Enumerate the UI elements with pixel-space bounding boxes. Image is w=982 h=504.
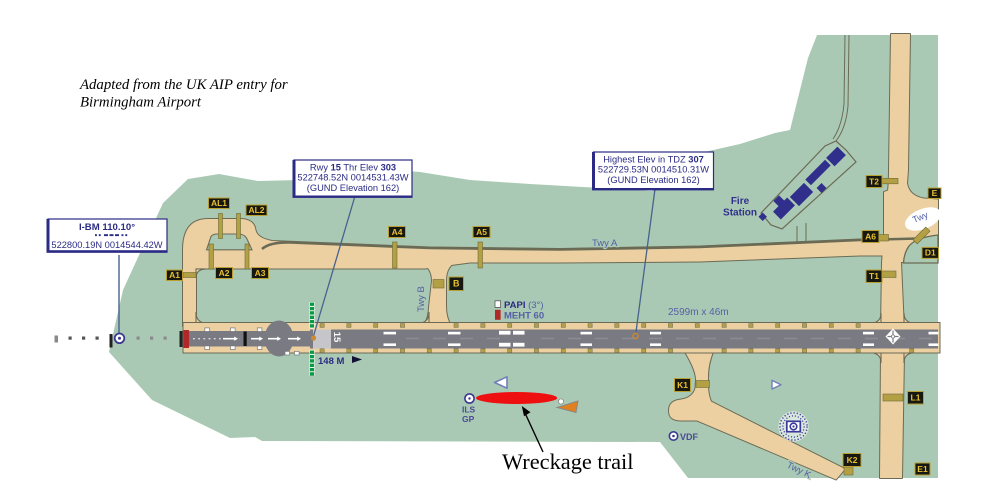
svg-text:Rwy 15 Thr Elev 303: Rwy 15 Thr Elev 303	[310, 163, 396, 173]
svg-text:Wreckage trail: Wreckage trail	[502, 449, 634, 474]
svg-text:E1: E1	[917, 464, 928, 474]
svg-text:148 M: 148 M	[318, 356, 344, 367]
svg-text:AL1: AL1	[211, 198, 227, 208]
svg-text:T2: T2	[869, 176, 879, 186]
svg-text:A1: A1	[169, 270, 180, 280]
svg-text:D1: D1	[925, 248, 936, 258]
svg-text:MEHT 60: MEHT 60	[504, 311, 544, 322]
svg-text:A4: A4	[392, 227, 403, 237]
svg-text:A6: A6	[865, 231, 876, 241]
svg-text:I-BM 110.10°: I-BM 110.10°	[79, 222, 135, 233]
svg-text:K1: K1	[677, 380, 688, 390]
svg-text:(GUND Elevation 162): (GUND Elevation 162)	[607, 175, 700, 185]
svg-text:ILS: ILS	[462, 405, 476, 415]
svg-text:522748.52N 0014531.43W: 522748.52N 0014531.43W	[297, 173, 408, 183]
svg-text:PAPI (3°): PAPI (3°)	[504, 300, 544, 311]
svg-text:T1: T1	[869, 271, 879, 281]
svg-text:A3: A3	[255, 268, 266, 278]
svg-text:E: E	[932, 188, 938, 198]
svg-text:Adapted from the UK AIP entry: Adapted from the UK AIP entry for	[79, 77, 288, 93]
svg-text:15: 15	[331, 332, 342, 343]
svg-text:Highest Elev in TDZ 307: Highest Elev in TDZ 307	[603, 155, 704, 165]
svg-text:522729.53N 0014510.31W: 522729.53N 0014510.31W	[598, 165, 709, 175]
svg-text:AL2: AL2	[248, 205, 264, 215]
svg-text:GP: GP	[462, 414, 475, 424]
svg-text:L1: L1	[911, 393, 921, 403]
svg-text:Fire: Fire	[731, 196, 750, 207]
svg-text:Station: Station	[723, 208, 757, 219]
svg-text:VDF: VDF	[680, 432, 699, 442]
svg-text:A5: A5	[476, 227, 487, 237]
svg-text:K2: K2	[847, 455, 858, 465]
svg-text:Twy A: Twy A	[592, 238, 618, 249]
svg-text:(GUND Elevation 162): (GUND Elevation 162)	[307, 183, 400, 193]
svg-text:Twy B: Twy B	[416, 286, 427, 312]
svg-text:Birmingham Airport: Birmingham Airport	[80, 95, 202, 111]
svg-text:522800.19N 0014544.42W: 522800.19N 0014544.42W	[51, 240, 162, 250]
svg-text:2599m x 46m: 2599m x 46m	[668, 307, 729, 318]
svg-text:A2: A2	[219, 268, 230, 278]
svg-text:B: B	[453, 279, 460, 289]
